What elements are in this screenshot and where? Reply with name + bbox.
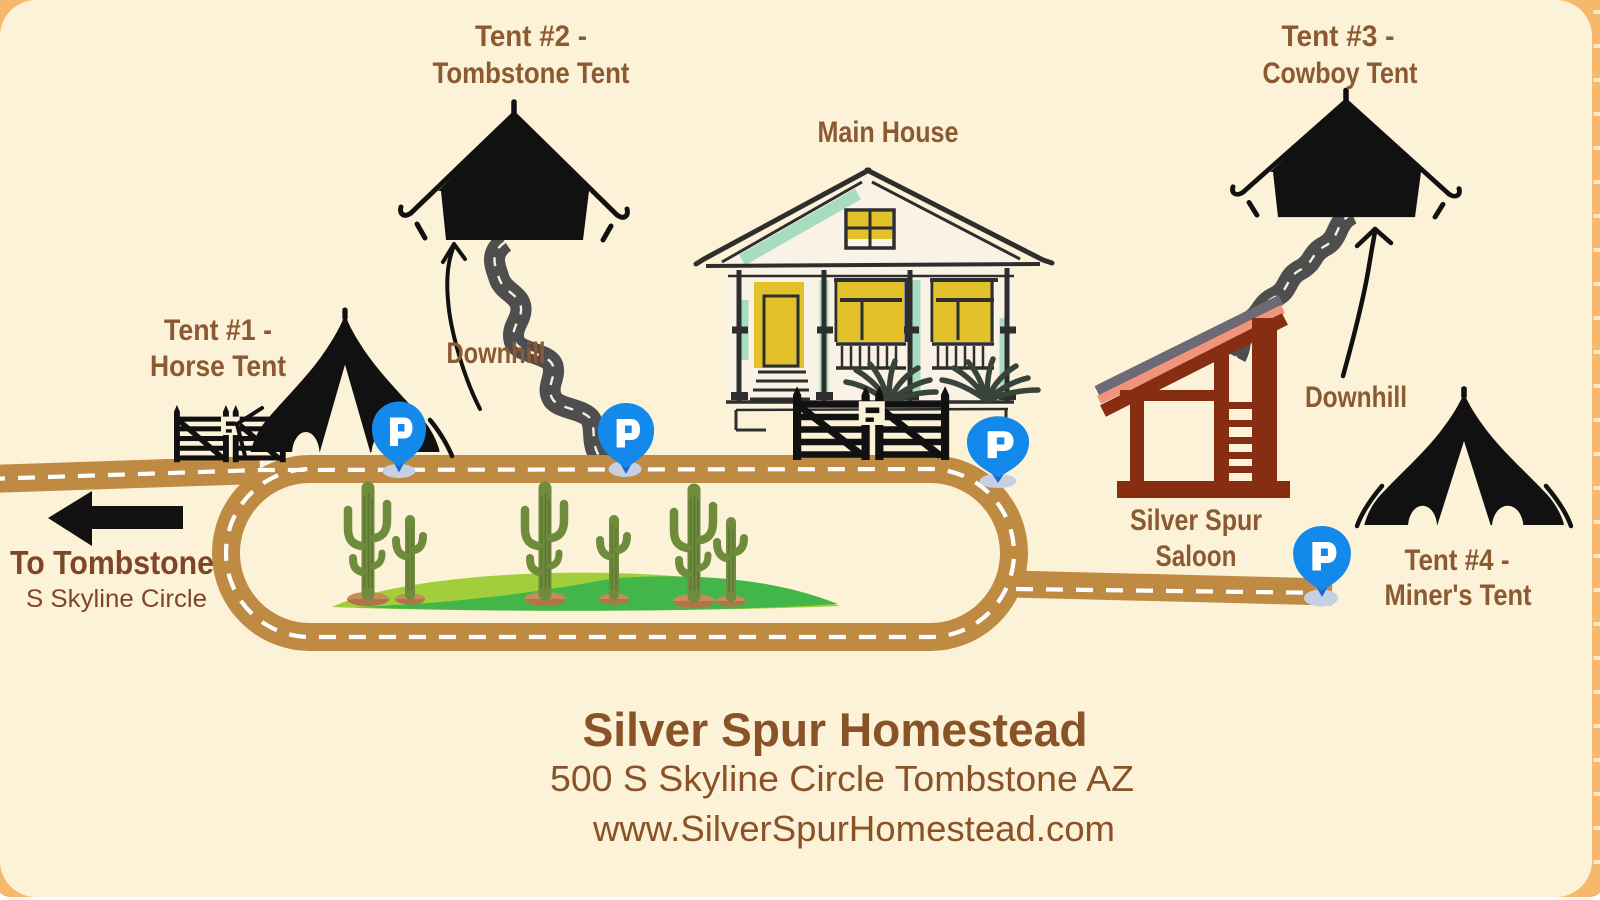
svg-text:Silver Spur Homestead: Silver Spur Homestead xyxy=(583,703,1088,756)
svg-text:Tent #4 -: Tent #4 - xyxy=(1405,544,1510,577)
svg-text:Tent #3 -: Tent #3 - xyxy=(1282,20,1395,53)
svg-text:Horse Tent: Horse Tent xyxy=(150,350,286,383)
svg-text:Miner's Tent: Miner's Tent xyxy=(1385,579,1532,612)
svg-text:Downhill: Downhill xyxy=(1305,381,1407,414)
svg-text:S Skyline Circle: S Skyline Circle xyxy=(26,585,207,613)
svg-text:Tent #2 -: Tent #2 - xyxy=(475,20,587,53)
svg-text:Tent #1 -: Tent #1 - xyxy=(164,314,272,347)
svg-text:Downhill: Downhill xyxy=(447,337,546,370)
svg-text:Main House: Main House xyxy=(818,116,959,149)
svg-text:Saloon: Saloon xyxy=(1156,540,1237,573)
svg-text:To Tombstone: To Tombstone xyxy=(10,544,214,581)
svg-text:www.SilverSpurHomestead.com: www.SilverSpurHomestead.com xyxy=(592,808,1115,849)
svg-text:500 S Skyline Circle Tombstone: 500 S Skyline Circle Tombstone AZ xyxy=(550,758,1134,799)
svg-text:Cowboy Tent: Cowboy Tent xyxy=(1263,57,1418,90)
svg-text:Tombstone Tent: Tombstone Tent xyxy=(433,57,630,90)
svg-text:Silver Spur: Silver Spur xyxy=(1130,504,1262,537)
